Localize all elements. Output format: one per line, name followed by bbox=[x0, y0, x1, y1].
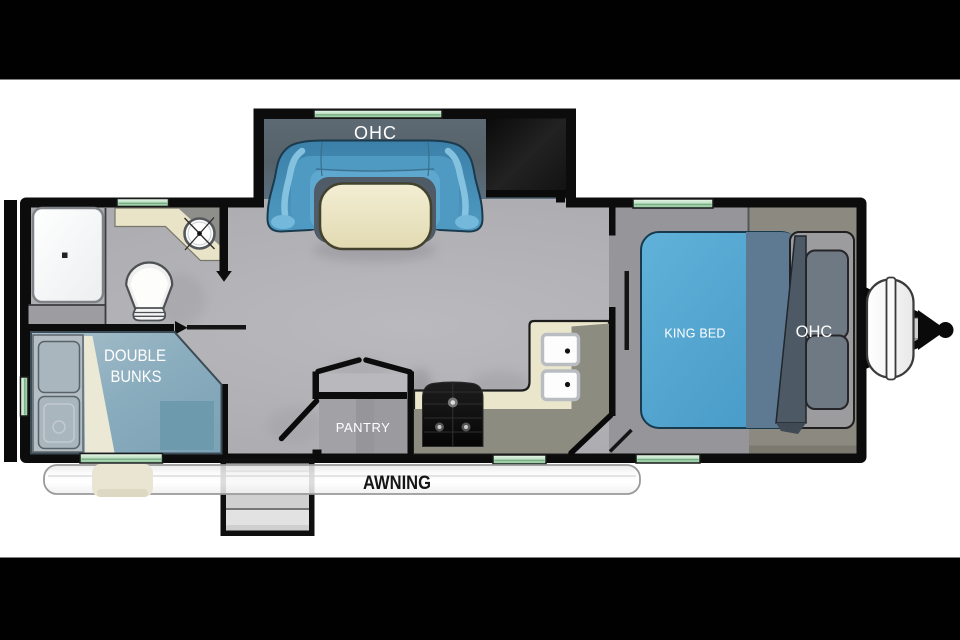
svg-text:OHC: OHC bbox=[796, 323, 833, 341]
svg-text:OHC: OHC bbox=[354, 123, 397, 143]
svg-text:KING BED: KING BED bbox=[664, 327, 725, 341]
svg-text:PANTRY: PANTRY bbox=[336, 420, 391, 435]
svg-text:DOUBLE: DOUBLE bbox=[104, 347, 166, 365]
svg-text:AWNING: AWNING bbox=[363, 473, 431, 494]
svg-text:BUNKS: BUNKS bbox=[111, 368, 162, 386]
